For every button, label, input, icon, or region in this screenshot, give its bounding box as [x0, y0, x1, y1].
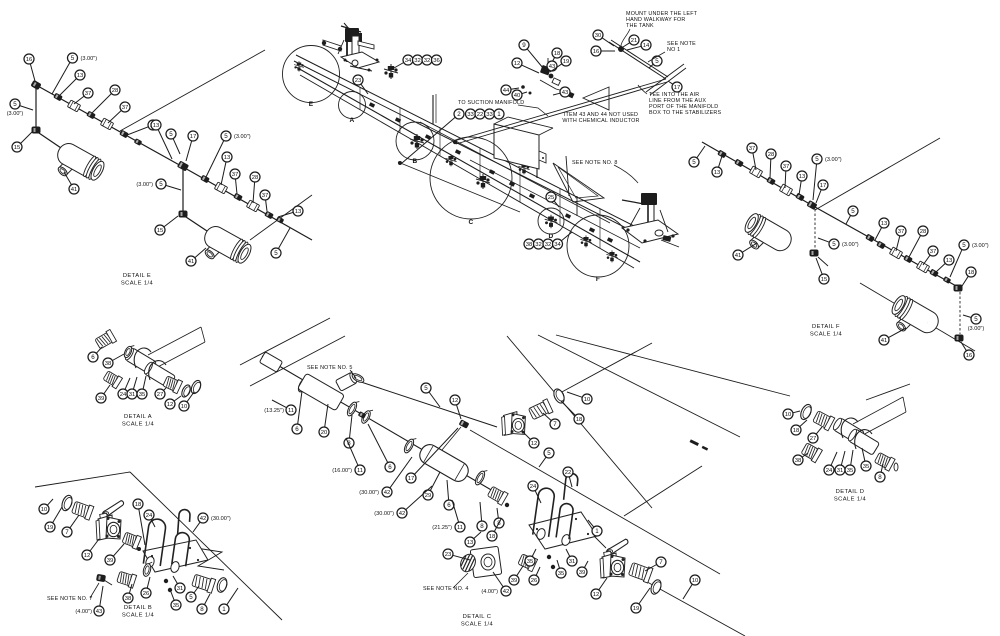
- svg-text:27: 27: [157, 392, 164, 398]
- svg-text:(3.00"): (3.00"): [972, 243, 989, 249]
- svg-text:24: 24: [826, 468, 833, 474]
- svg-text:(3.00"): (3.00"): [234, 134, 251, 140]
- svg-text:DETAIL B: DETAIL B: [124, 605, 152, 611]
- svg-text:A: A: [350, 117, 355, 124]
- svg-text:C: C: [469, 219, 474, 226]
- svg-text:NO 1: NO 1: [667, 47, 680, 53]
- svg-text:2: 2: [457, 111, 461, 118]
- svg-text:15: 15: [14, 145, 21, 151]
- svg-text:5: 5: [189, 594, 193, 601]
- svg-text:41: 41: [188, 259, 195, 265]
- svg-text:SCALE 1/4: SCALE 1/4: [834, 497, 867, 503]
- svg-text:10: 10: [785, 412, 792, 418]
- svg-text:SCALE 1/4: SCALE 1/4: [121, 281, 154, 287]
- svg-text:8: 8: [878, 474, 882, 481]
- svg-text:17: 17: [190, 134, 197, 140]
- svg-text:DETAIL D: DETAIL D: [836, 489, 865, 495]
- svg-text:(3.00"): (3.00"): [968, 326, 985, 332]
- svg-text:SCALE 1/4: SCALE 1/4: [122, 613, 155, 619]
- svg-text:39: 39: [579, 570, 586, 576]
- svg-text:8: 8: [497, 520, 501, 527]
- svg-text:16: 16: [26, 57, 33, 63]
- svg-text:9: 9: [522, 42, 526, 49]
- svg-text:18: 18: [576, 417, 583, 423]
- svg-text:33: 33: [486, 112, 493, 118]
- svg-text:5: 5: [815, 156, 819, 163]
- svg-text:TO SUCTION MANIFOLD: TO SUCTION MANIFOLD: [458, 100, 524, 106]
- svg-text:10: 10: [692, 578, 699, 584]
- svg-text:16: 16: [593, 49, 600, 55]
- svg-text:15: 15: [821, 277, 828, 283]
- svg-text:35: 35: [863, 464, 870, 470]
- svg-text:(3.00"): (3.00"): [842, 242, 859, 248]
- svg-text:31: 31: [837, 468, 844, 474]
- svg-text:SEE NOTE NO. 4: SEE NOTE NO. 4: [423, 586, 469, 592]
- svg-text:40: 40: [514, 93, 521, 99]
- svg-text:17: 17: [674, 85, 681, 91]
- svg-text:37: 37: [898, 229, 905, 235]
- svg-text:SCALE 1/4: SCALE 1/4: [810, 332, 843, 338]
- svg-text:13: 13: [224, 155, 231, 161]
- svg-text:(3.00"): (3.00"): [136, 182, 153, 188]
- svg-text:19: 19: [563, 59, 570, 65]
- svg-text:(30.00"): (30.00"): [359, 490, 379, 496]
- svg-text:F: F: [596, 276, 600, 283]
- svg-text:35: 35: [173, 603, 180, 609]
- svg-text:41: 41: [71, 187, 78, 193]
- svg-text:18: 18: [135, 502, 142, 508]
- svg-text:11: 11: [457, 525, 463, 531]
- svg-text:13: 13: [77, 73, 84, 79]
- svg-text:22: 22: [477, 112, 484, 118]
- svg-text:6: 6: [295, 426, 299, 433]
- svg-text:(4.00"): (4.00"): [75, 609, 92, 615]
- svg-text:(30.00"): (30.00"): [374, 511, 394, 517]
- svg-text:E: E: [309, 101, 314, 108]
- svg-text:12: 12: [514, 61, 521, 67]
- svg-text:17: 17: [408, 476, 415, 482]
- svg-text:5: 5: [547, 450, 551, 457]
- svg-text:5: 5: [274, 250, 278, 257]
- svg-text:37: 37: [232, 172, 239, 178]
- svg-text:37: 37: [930, 249, 937, 255]
- svg-text:(13.25"): (13.25"): [264, 408, 284, 414]
- svg-text:5: 5: [832, 241, 836, 248]
- svg-text:15: 15: [157, 228, 164, 234]
- svg-text:32: 32: [545, 242, 552, 248]
- svg-text:16: 16: [966, 353, 973, 359]
- svg-text:12: 12: [593, 592, 600, 598]
- svg-text:5: 5: [974, 316, 978, 323]
- svg-text:(3.00"): (3.00"): [7, 111, 24, 117]
- svg-text:10: 10: [41, 507, 48, 513]
- svg-text:12: 12: [531, 441, 538, 447]
- svg-text:7: 7: [65, 529, 69, 536]
- svg-text:37: 37: [85, 91, 92, 97]
- svg-text:8: 8: [200, 606, 204, 613]
- svg-text:14: 14: [643, 43, 650, 49]
- svg-text:32: 32: [535, 242, 542, 248]
- svg-text:5: 5: [655, 58, 659, 65]
- svg-text:(30.00"): (30.00"): [211, 516, 231, 522]
- svg-text:32: 32: [414, 58, 421, 64]
- svg-text:B: B: [413, 158, 418, 165]
- svg-text:12: 12: [84, 553, 91, 559]
- svg-text:37: 37: [262, 193, 269, 199]
- svg-text:SCALE 1/4: SCALE 1/4: [461, 622, 494, 628]
- svg-text:34: 34: [554, 242, 561, 248]
- svg-text:42: 42: [503, 589, 510, 595]
- svg-text:38: 38: [105, 361, 112, 367]
- svg-text:13: 13: [714, 170, 721, 176]
- svg-text:20: 20: [321, 430, 328, 436]
- svg-text:31: 31: [177, 586, 184, 592]
- svg-text:31: 31: [569, 559, 576, 565]
- svg-text:6: 6: [91, 354, 95, 361]
- svg-text:1: 1: [222, 606, 226, 613]
- svg-text:42: 42: [200, 516, 207, 522]
- svg-text:43: 43: [562, 90, 569, 96]
- svg-text:38: 38: [795, 458, 802, 464]
- svg-text:17: 17: [820, 183, 827, 189]
- svg-text:11: 11: [357, 468, 363, 474]
- svg-text:5: 5: [692, 159, 696, 166]
- svg-text:44: 44: [503, 88, 510, 94]
- svg-text:(21.25"): (21.25"): [432, 525, 452, 531]
- svg-text:THE TANK: THE TANK: [626, 23, 654, 29]
- svg-text:5: 5: [224, 133, 228, 140]
- svg-text:25: 25: [548, 195, 555, 201]
- svg-text:42: 42: [384, 490, 391, 496]
- svg-text:WITH CHEMICAL INDUCTOR: WITH CHEMICAL INDUCTOR: [562, 118, 639, 124]
- svg-text:28: 28: [252, 175, 259, 181]
- svg-text:24: 24: [530, 484, 537, 490]
- svg-text:26: 26: [531, 578, 538, 584]
- svg-text:5: 5: [169, 131, 173, 138]
- svg-text:18: 18: [554, 51, 561, 57]
- svg-text:1: 1: [595, 528, 599, 535]
- svg-text:28: 28: [920, 229, 927, 235]
- svg-text:35: 35: [558, 571, 565, 577]
- svg-text:42: 42: [399, 511, 406, 517]
- svg-text:19: 19: [47, 525, 54, 531]
- svg-text:(16.00"): (16.00"): [332, 468, 352, 474]
- svg-text:12: 12: [167, 402, 174, 408]
- svg-text:13: 13: [153, 123, 160, 129]
- svg-text:6: 6: [388, 464, 392, 471]
- svg-text:(4.00"): (4.00"): [481, 589, 498, 595]
- svg-text:28: 28: [112, 88, 119, 94]
- svg-text:BOX TO THE STABILIZERS: BOX TO THE STABILIZERS: [649, 110, 722, 116]
- svg-text:12: 12: [452, 398, 459, 404]
- svg-text:39: 39: [511, 578, 518, 584]
- svg-text:18: 18: [793, 428, 800, 434]
- svg-text:6: 6: [447, 502, 451, 509]
- svg-text:28: 28: [768, 152, 775, 158]
- svg-text:13: 13: [946, 258, 953, 264]
- svg-text:5: 5: [424, 385, 428, 392]
- svg-text:5: 5: [13, 101, 17, 108]
- svg-text:39: 39: [98, 396, 105, 402]
- svg-text:39: 39: [107, 558, 114, 564]
- svg-text:35: 35: [527, 559, 534, 565]
- svg-text:38: 38: [125, 596, 132, 602]
- svg-text:41: 41: [881, 338, 888, 344]
- svg-text:35: 35: [139, 392, 146, 398]
- svg-text:7: 7: [659, 559, 663, 566]
- svg-text:37: 37: [749, 146, 756, 152]
- svg-text:23: 23: [445, 552, 452, 558]
- svg-text:18: 18: [489, 534, 496, 540]
- svg-text:DETAIL E: DETAIL E: [123, 273, 151, 279]
- svg-text:13: 13: [467, 540, 474, 546]
- svg-text:7: 7: [553, 421, 557, 428]
- svg-text:38: 38: [526, 242, 533, 248]
- svg-text:32: 32: [424, 58, 431, 64]
- svg-text:8: 8: [480, 523, 484, 530]
- svg-text:5: 5: [962, 242, 966, 249]
- svg-text:29: 29: [425, 493, 432, 499]
- svg-text:33: 33: [467, 112, 474, 118]
- svg-text:26: 26: [143, 591, 150, 597]
- svg-text:23: 23: [355, 78, 362, 84]
- svg-text:21: 21: [631, 38, 638, 44]
- svg-text:19: 19: [633, 606, 640, 612]
- svg-text:37: 37: [122, 105, 129, 111]
- svg-text:13: 13: [881, 221, 888, 227]
- svg-text:13: 13: [295, 209, 302, 215]
- svg-text:(3.00"): (3.00"): [825, 157, 842, 163]
- svg-text:24: 24: [120, 392, 127, 398]
- svg-text:SCALE 1/4: SCALE 1/4: [122, 422, 155, 428]
- svg-text:10: 10: [181, 404, 188, 410]
- svg-text:30: 30: [595, 33, 602, 39]
- svg-text:5: 5: [159, 181, 163, 188]
- svg-text:35: 35: [847, 468, 854, 474]
- svg-text:DETAIL C: DETAIL C: [463, 614, 492, 620]
- svg-text:11: 11: [288, 408, 294, 414]
- svg-text:18: 18: [968, 270, 975, 276]
- svg-text:5: 5: [71, 55, 75, 62]
- svg-text:24: 24: [146, 513, 153, 519]
- svg-text:13: 13: [799, 174, 806, 180]
- svg-text:36: 36: [433, 58, 440, 64]
- svg-text:34: 34: [405, 58, 412, 64]
- svg-text:37: 37: [783, 164, 790, 170]
- svg-text:DETAIL A: DETAIL A: [124, 414, 152, 420]
- svg-text:5: 5: [851, 208, 855, 215]
- svg-text:SEE NOTE NO. 7: SEE NOTE NO. 7: [47, 596, 93, 602]
- svg-text:SEE NOTE NO. 8: SEE NOTE NO. 8: [572, 160, 618, 166]
- svg-text:(3.00"): (3.00"): [81, 56, 98, 62]
- svg-text:DETAIL F: DETAIL F: [812, 324, 840, 330]
- svg-text:43: 43: [96, 609, 103, 615]
- svg-text:41: 41: [735, 253, 742, 259]
- svg-text:1: 1: [497, 111, 501, 118]
- svg-text:SEE NOTE NO. 5: SEE NOTE NO. 5: [307, 365, 353, 371]
- svg-text:22: 22: [565, 470, 572, 476]
- svg-text:27: 27: [810, 436, 817, 442]
- svg-text:10: 10: [584, 397, 591, 403]
- svg-text:31: 31: [129, 392, 136, 398]
